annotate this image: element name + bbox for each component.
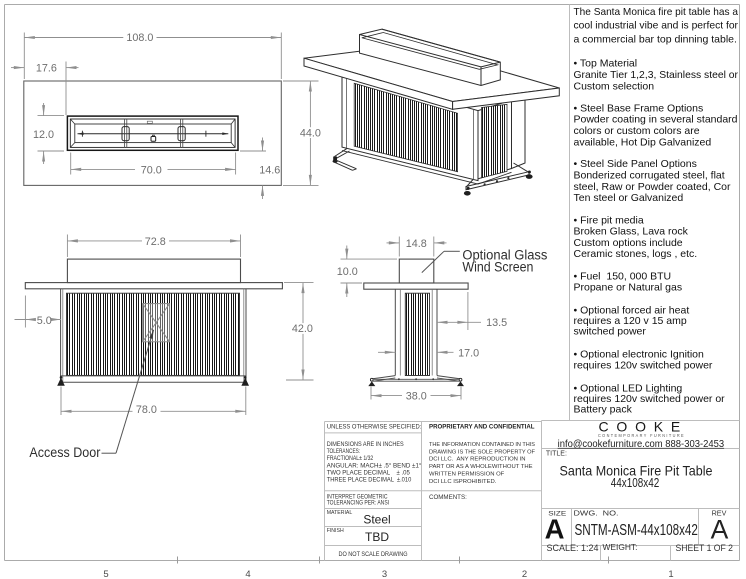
svg-text:available, Hot Dip Galvanized: available, Hot Dip Galvanized bbox=[574, 137, 712, 149]
svg-text:TBD: TBD bbox=[365, 530, 389, 544]
svg-text:• Top Material: • Top Material bbox=[574, 58, 638, 70]
svg-text:THREE PLACE DECIMAL ±.010: THREE PLACE DECIMAL ±.010 bbox=[327, 478, 412, 484]
svg-text:A: A bbox=[711, 515, 729, 545]
svg-text:MATERIAL: MATERIAL bbox=[327, 510, 353, 516]
svg-text:TOLERANCING PER: ANSI: TOLERANCING PER: ANSI bbox=[327, 500, 390, 506]
svg-text:A: A bbox=[545, 514, 565, 545]
svg-text:14.8: 14.8 bbox=[406, 238, 427, 250]
svg-text:1: 1 bbox=[668, 569, 673, 579]
svg-text:DCI LLC ISPROHIBITED.: DCI LLC ISPROHIBITED. bbox=[429, 479, 497, 485]
svg-text:THE INFORMATION CONTAINED IN T: THE INFORMATION CONTAINED IN THIS bbox=[429, 442, 535, 448]
svg-text:14.6: 14.6 bbox=[259, 165, 280, 177]
svg-text:FINISH: FINISH bbox=[327, 528, 344, 534]
svg-text:Access Door: Access Door bbox=[29, 445, 101, 460]
svg-text:a commercial bar top dinning t: a commercial bar top dinning table. bbox=[574, 33, 737, 45]
svg-text:• Fire pit media: • Fire pit media bbox=[574, 215, 644, 227]
svg-text:17.0: 17.0 bbox=[458, 347, 479, 359]
svg-text:70.0: 70.0 bbox=[141, 165, 162, 177]
svg-text:78.0: 78.0 bbox=[136, 404, 157, 416]
svg-text:Bonderized corrugated steel, f: Bonderized corrugated steel, flat bbox=[574, 170, 725, 182]
svg-text:12.0: 12.0 bbox=[33, 129, 54, 141]
svg-text:Wind Screen: Wind Screen bbox=[462, 260, 533, 275]
svg-text:WEIGHT:: WEIGHT: bbox=[603, 542, 638, 552]
svg-text:Steel: Steel bbox=[363, 513, 390, 527]
svg-text:5.0: 5.0 bbox=[37, 315, 52, 327]
svg-text:WRITTEN PERMISSION OF: WRITTEN PERMISSION OF bbox=[429, 471, 505, 477]
svg-text:The Santa Monica fire pit tabl: The Santa Monica fire pit table has a bbox=[574, 6, 739, 18]
svg-text:TWO PLACE DECIMAL ± .05: TWO PLACE DECIMAL ± .05 bbox=[327, 470, 411, 476]
svg-text:DRAWING IS THE SOLE PROPERTY O: DRAWING IS THE SOLE PROPERTY OF bbox=[429, 449, 535, 455]
svg-text:108.0: 108.0 bbox=[126, 32, 153, 44]
svg-text:2: 2 bbox=[522, 569, 527, 579]
svg-text:ANGULAR: MACH± .5° BEND ±1°: ANGULAR: MACH± .5° BEND ±1° bbox=[327, 463, 422, 469]
svg-text:DO NOT SCALE DRAWING: DO NOT SCALE DRAWING bbox=[339, 551, 408, 558]
svg-text:steel, Raw or Powder coated, C: steel, Raw or Powder coated, Cor bbox=[574, 181, 731, 193]
svg-text:PROPRIETARY AND CONFIDENTIAL: PROPRIETARY AND CONFIDENTIAL bbox=[429, 424, 535, 431]
svg-text:switched power: switched power bbox=[574, 326, 647, 338]
svg-text:17.6: 17.6 bbox=[36, 63, 57, 75]
svg-text:DIMENSIONS ARE IN INCHES: DIMENSIONS ARE IN INCHES bbox=[327, 442, 404, 448]
svg-text:44.0: 44.0 bbox=[300, 127, 321, 139]
svg-text:4: 4 bbox=[245, 569, 250, 579]
svg-text:SNTM-ASM-44x108x42: SNTM-ASM-44x108x42 bbox=[574, 522, 698, 539]
svg-text:SHEET 1 OF 2: SHEET 1 OF 2 bbox=[676, 543, 734, 553]
svg-text:TOLERANCES:: TOLERANCES: bbox=[327, 449, 361, 455]
svg-text:COOKE: COOKE bbox=[599, 418, 689, 434]
svg-text:44x108x42: 44x108x42 bbox=[611, 475, 660, 490]
svg-text:13.5: 13.5 bbox=[486, 317, 507, 329]
svg-text:Powder coating in several stan: Powder coating in several standard bbox=[574, 114, 738, 126]
svg-text:38.0: 38.0 bbox=[406, 390, 427, 402]
svg-text:Propane or Natural gas: Propane or Natural gas bbox=[574, 281, 683, 293]
svg-text:PART OR AS A WHOLEWITHOUT THE: PART OR AS A WHOLEWITHOUT THE bbox=[429, 464, 533, 470]
svg-text:42.0: 42.0 bbox=[292, 323, 313, 335]
svg-text:3: 3 bbox=[382, 569, 387, 579]
svg-text:TITLE:: TITLE: bbox=[546, 451, 567, 458]
svg-text:FRACTIONAL± 1/32: FRACTIONAL± 1/32 bbox=[327, 456, 374, 462]
svg-text:Ceramic stones, logs , etc.: Ceramic stones, logs , etc. bbox=[574, 248, 698, 260]
svg-text:COMMENTS:: COMMENTS: bbox=[429, 494, 467, 501]
svg-text:5: 5 bbox=[103, 569, 108, 579]
svg-text:Custom options include: Custom options include bbox=[574, 237, 683, 249]
svg-text:requires 120v switched power: requires 120v switched power bbox=[574, 360, 713, 372]
svg-text:Battery pack: Battery pack bbox=[574, 404, 633, 416]
svg-text:Ten steel or Galvanized: Ten steel or Galvanized bbox=[574, 192, 684, 204]
svg-text:Custom selection: Custom selection bbox=[574, 81, 655, 93]
svg-text:cool industrial vibe and is pe: cool industrial vibe and is perfect for bbox=[574, 20, 739, 32]
svg-text:DCI LLC. ANY REPRODUCTION IN: DCI LLC. ANY REPRODUCTION IN bbox=[429, 457, 525, 463]
svg-text:SCALE: 1:24: SCALE: 1:24 bbox=[547, 543, 599, 553]
svg-text:UNLESS OTHERWISE SPECIFIED:: UNLESS OTHERWISE SPECIFIED: bbox=[327, 423, 422, 430]
svg-text:• Steel Base Frame Options: • Steel Base Frame Options bbox=[574, 102, 704, 114]
svg-text:10.0: 10.0 bbox=[337, 266, 358, 278]
svg-text:colors or custom colors are: colors or custom colors are bbox=[574, 125, 700, 137]
svg-text:DWG. NO.: DWG. NO. bbox=[574, 509, 619, 518]
svg-text:CONTEMPORARY FURNITURE: CONTEMPORARY FURNITURE bbox=[598, 433, 685, 438]
svg-text:Granite Tier 1,2,3, Stainless: Granite Tier 1,2,3, Stainless steel or bbox=[574, 69, 739, 81]
svg-text:Broken Glass, Lava rock: Broken Glass, Lava rock bbox=[574, 226, 689, 238]
svg-text:• Steel Side Panel Options: • Steel Side Panel Options bbox=[574, 158, 697, 170]
svg-text:72.8: 72.8 bbox=[145, 236, 166, 248]
